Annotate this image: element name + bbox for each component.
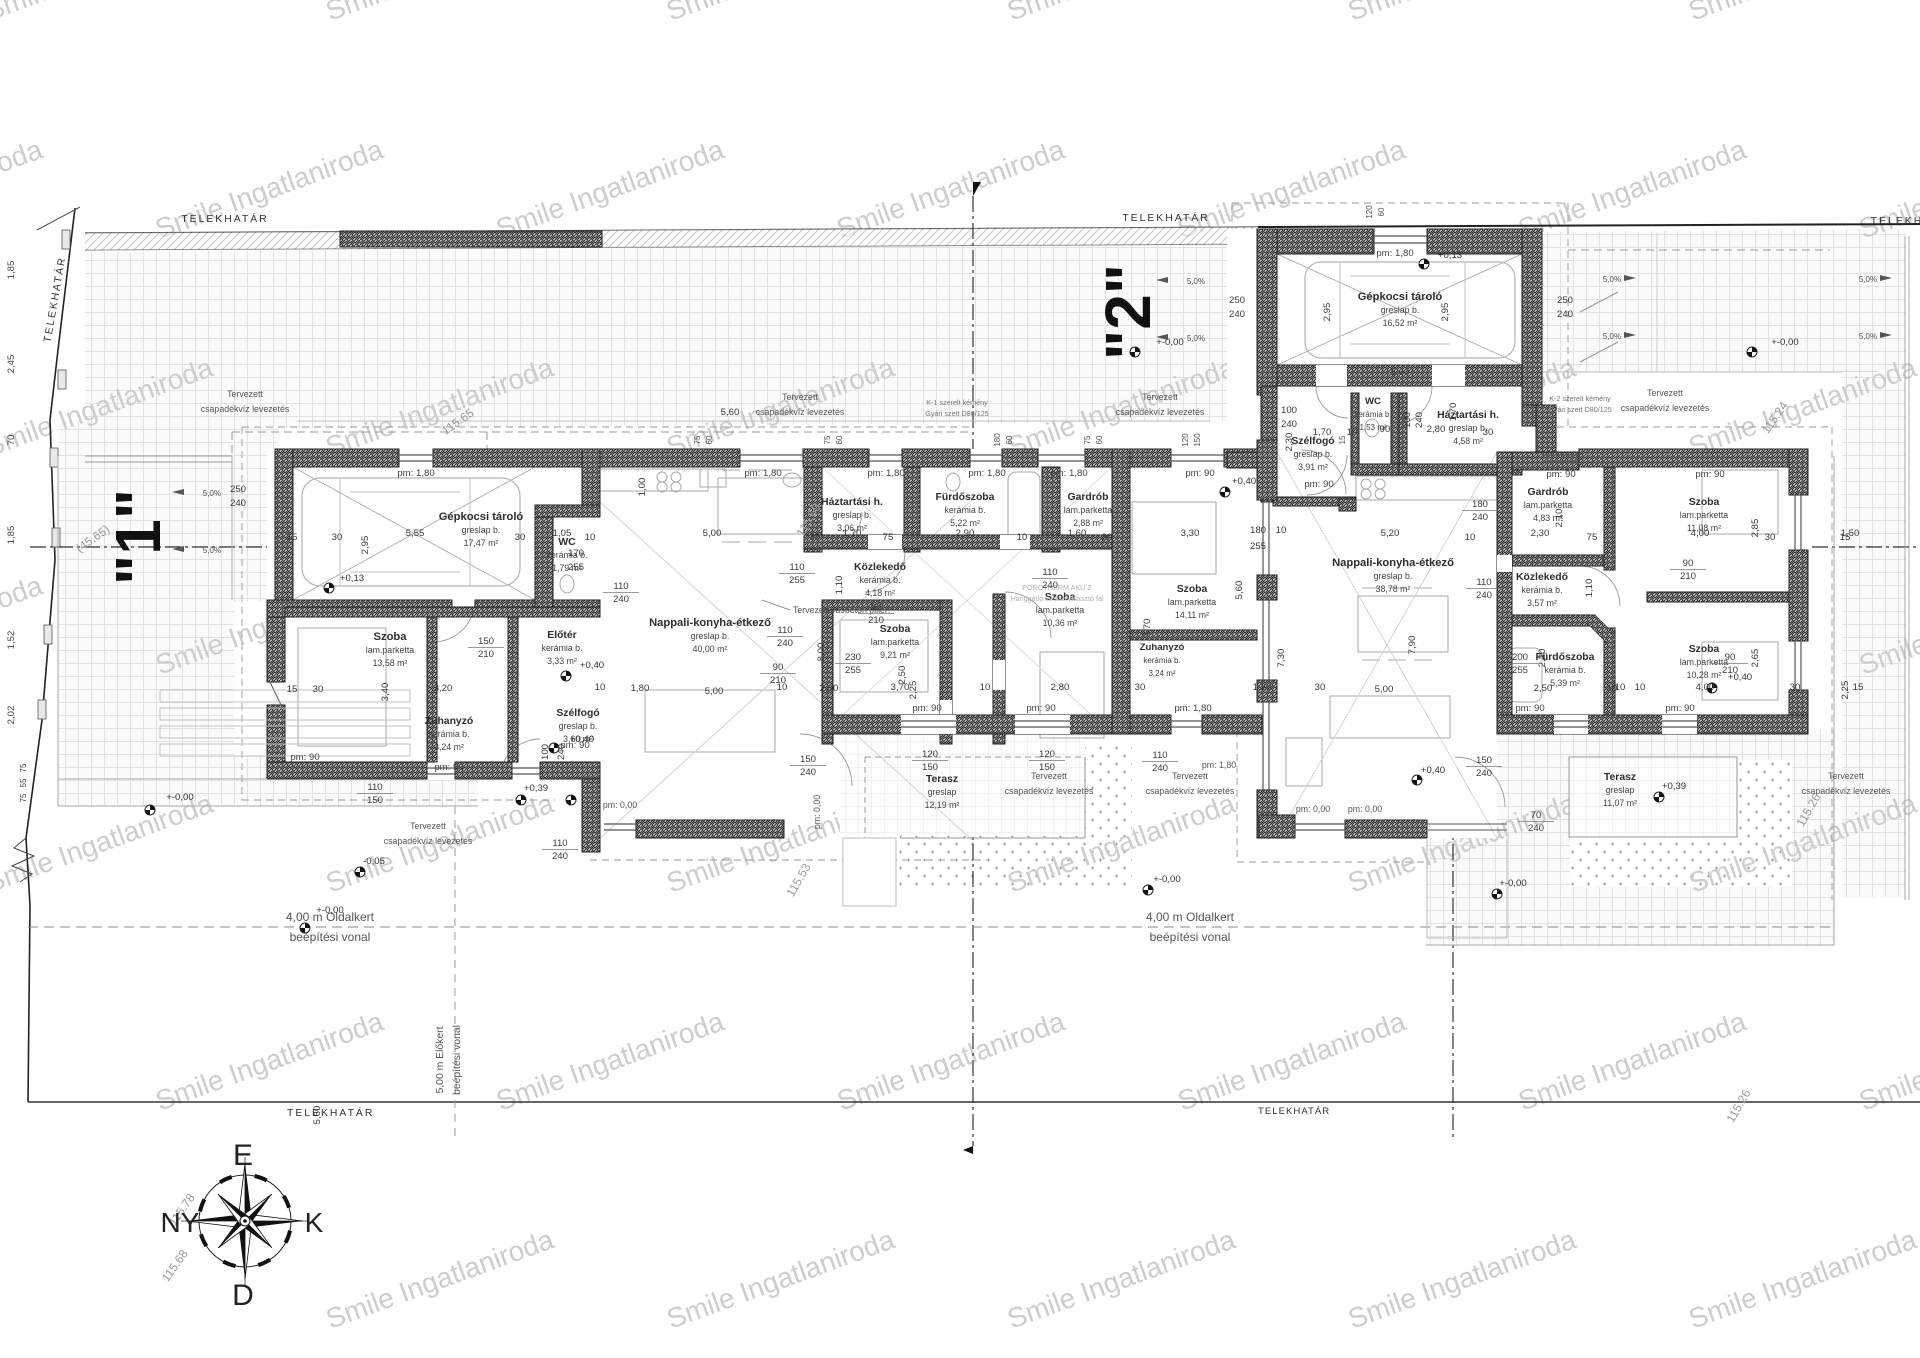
svg-text:pm: 90: pm: 90 xyxy=(290,752,319,763)
svg-text:3,40: 3,40 xyxy=(380,683,391,702)
svg-text:255: 255 xyxy=(789,575,805,586)
svg-text:16,52 m²: 16,52 m² xyxy=(1383,318,1418,328)
svg-text:210: 210 xyxy=(478,649,494,660)
svg-text:8,00: 8,00 xyxy=(816,643,827,662)
svg-text:pm: 90: pm: 90 xyxy=(1665,703,1694,714)
svg-text:pm: 0,00: pm: 0,00 xyxy=(603,800,637,810)
svg-text:Fürdőszoba: Fürdőszoba xyxy=(936,492,995,503)
svg-text:7,90: 7,90 xyxy=(1407,636,1418,655)
svg-text:pm: 90: pm: 90 xyxy=(1695,469,1724,480)
svg-text:255: 255 xyxy=(1250,541,1266,552)
svg-text:Terasz: Terasz xyxy=(1604,772,1636,783)
svg-text:Tervezett: Tervezett xyxy=(410,821,446,831)
svg-text:TELEKHATÁR: TELEKHATÁR xyxy=(1122,211,1209,224)
svg-text:2,02: 2,02 xyxy=(6,706,17,725)
svg-text:250: 250 xyxy=(1557,295,1573,306)
svg-text:30: 30 xyxy=(1483,427,1494,438)
svg-text:2,90: 2,90 xyxy=(956,528,975,539)
svg-text:1,70: 1,70 xyxy=(843,528,862,539)
svg-text:+0,40: +0,40 xyxy=(1421,765,1445,776)
svg-text:1,10: 1,10 xyxy=(834,576,845,595)
svg-text:5,60: 5,60 xyxy=(1391,367,1410,378)
svg-text:Előtér: Előtér xyxy=(547,630,576,641)
svg-text:1,20: 1,20 xyxy=(1253,682,1272,693)
svg-text:Szoba: Szoba xyxy=(1689,644,1720,655)
svg-text:10: 10 xyxy=(1465,532,1476,543)
svg-text:75: 75 xyxy=(19,793,28,802)
svg-text:240: 240 xyxy=(1281,419,1297,430)
svg-text:kerámia b.: kerámia b. xyxy=(1544,665,1585,675)
svg-text:120: 120 xyxy=(1365,205,1374,219)
svg-text:30: 30 xyxy=(1790,682,1801,693)
svg-text:30: 30 xyxy=(1315,682,1326,693)
svg-text:kerámia b.: kerámia b. xyxy=(428,729,469,739)
svg-text:60: 60 xyxy=(1005,435,1014,444)
svg-text:3,57 m²: 3,57 m² xyxy=(1527,598,1557,608)
svg-text:+0,39: +0,39 xyxy=(1662,781,1686,792)
svg-text:110: 110 xyxy=(367,782,382,793)
svg-text:1,10: 1,10 xyxy=(1584,579,1595,598)
svg-text:12,19 m²: 12,19 m² xyxy=(925,800,960,810)
svg-text:Gépkocsi tároló: Gépkocsi tároló xyxy=(439,511,524,523)
svg-text:csapadékvíz levezetés: csapadékvíz levezetés xyxy=(1621,403,1710,413)
svg-text:Tervezett: Tervezett xyxy=(1172,771,1208,781)
svg-text:Háztartási h.: Háztartási h. xyxy=(1437,410,1499,421)
svg-text:2,25: 2,25 xyxy=(908,681,919,700)
svg-text:230: 230 xyxy=(845,652,861,663)
svg-text:2,50: 2,50 xyxy=(897,666,908,685)
svg-text:Gardrób: Gardrób xyxy=(1068,492,1109,503)
svg-text:30: 30 xyxy=(1765,532,1776,543)
svg-text:Szoba: Szoba xyxy=(880,624,911,635)
svg-text:240: 240 xyxy=(1557,309,1573,320)
svg-text:100: 100 xyxy=(1281,405,1297,416)
svg-text:5,00: 5,00 xyxy=(703,528,722,539)
svg-text:200: 200 xyxy=(1512,652,1528,663)
svg-text:15: 15 xyxy=(1853,682,1864,693)
svg-text:240: 240 xyxy=(1229,309,1245,320)
svg-text:greslap b.: greslap b. xyxy=(691,631,730,641)
svg-text:240: 240 xyxy=(230,498,246,509)
svg-text:150: 150 xyxy=(1193,433,1202,447)
svg-text:2,85: 2,85 xyxy=(1750,519,1761,538)
svg-text:kerámia b.: kerámia b. xyxy=(1521,585,1562,595)
svg-text:lam.parketta: lam.parketta xyxy=(1524,500,1573,510)
svg-text:pm: 0,00: pm: 0,00 xyxy=(1296,804,1330,814)
svg-text:2,95: 2,95 xyxy=(1440,303,1451,322)
svg-text:15: 15 xyxy=(287,532,298,543)
svg-text:"1": "1" xyxy=(102,489,174,585)
svg-text:+0,40: +0,40 xyxy=(1232,476,1256,487)
svg-text:1,52: 1,52 xyxy=(6,631,17,650)
svg-text:13,58 m²: 13,58 m² xyxy=(373,658,408,668)
svg-text:210: 210 xyxy=(868,615,884,626)
svg-text:2,95: 2,95 xyxy=(360,536,371,555)
svg-text:greslap b.: greslap b. xyxy=(1449,423,1488,433)
svg-text:10,28 m²: 10,28 m² xyxy=(1687,670,1722,680)
svg-text:5,0%: 5,0% xyxy=(203,489,221,498)
svg-text:D: D xyxy=(232,1279,254,1312)
svg-text:greslap b.: greslap b. xyxy=(559,721,598,731)
svg-text:WC: WC xyxy=(1365,396,1381,407)
svg-text:Zuhanyzó: Zuhanyzó xyxy=(1140,642,1185,653)
svg-text:4,00: 4,00 xyxy=(1696,682,1715,693)
svg-text:3,24 m²: 3,24 m² xyxy=(1148,669,1175,678)
svg-text:110: 110 xyxy=(1152,750,1167,761)
svg-text:greslap: greslap xyxy=(928,787,957,797)
svg-text:75: 75 xyxy=(693,435,702,444)
svg-text:2,95: 2,95 xyxy=(1322,303,1333,322)
svg-text:csapadékvíz levezetés: csapadékvíz levezetés xyxy=(1146,786,1235,796)
svg-text:Tervezett: Tervezett xyxy=(782,392,818,402)
svg-text:kerámia b.: kerámia b. xyxy=(1143,656,1180,665)
svg-text:5,0%: 5,0% xyxy=(1603,275,1621,284)
svg-text:110: 110 xyxy=(552,838,567,849)
svg-text:3,20: 3,20 xyxy=(434,683,453,694)
svg-text:30: 30 xyxy=(332,532,343,543)
svg-text:kerámia b.: kerámia b. xyxy=(859,575,900,585)
svg-text:Nappali-konyha-étkező: Nappali-konyha-étkező xyxy=(1332,557,1454,569)
svg-text:+-0,00: +-0,00 xyxy=(1771,337,1798,348)
svg-text:Nappali-konyha-étkező: Nappali-konyha-étkező xyxy=(649,617,771,629)
svg-text:240: 240 xyxy=(552,851,568,862)
svg-text:240: 240 xyxy=(1414,412,1425,428)
svg-text:15: 15 xyxy=(287,684,298,695)
svg-text:38,78 m²: 38,78 m² xyxy=(1376,584,1411,594)
svg-text:pm: 1,80: pm: 1,80 xyxy=(1202,760,1236,770)
svg-text:2,50: 2,50 xyxy=(1534,683,1553,694)
svg-text:110: 110 xyxy=(777,625,792,636)
svg-text:pm: 1,80: pm: 1,80 xyxy=(744,468,781,479)
svg-text:greslap: greslap xyxy=(1606,785,1635,795)
svg-text:pm: 0,00: pm: 0,00 xyxy=(1348,804,1382,814)
svg-text:150: 150 xyxy=(922,762,938,773)
svg-text:NY: NY xyxy=(161,1207,200,1238)
svg-text:240: 240 xyxy=(800,767,816,778)
svg-text:Tervezett: Tervezett xyxy=(1647,388,1683,398)
svg-text:2,25: 2,25 xyxy=(1840,681,1851,700)
svg-text:75: 75 xyxy=(883,532,894,543)
svg-text:10: 10 xyxy=(1615,682,1626,693)
svg-text:180: 180 xyxy=(993,433,1002,447)
svg-text:2,45: 2,45 xyxy=(6,355,17,374)
svg-text:5,55: 5,55 xyxy=(406,528,425,539)
svg-text:lam.parketta: lam.parketta xyxy=(1168,597,1217,607)
svg-text:4,18 m²: 4,18 m² xyxy=(865,588,895,598)
svg-text:kerámia b.: kerámia b. xyxy=(541,643,582,653)
svg-text:110: 110 xyxy=(1476,577,1491,588)
svg-text:10: 10 xyxy=(1276,525,1287,536)
svg-text:255: 255 xyxy=(568,562,584,573)
svg-text:2,65: 2,65 xyxy=(1750,649,1761,668)
svg-text:2,00: 2,00 xyxy=(820,683,839,694)
svg-text:Tervezett: Tervezett xyxy=(1142,392,1178,402)
svg-text:Szélfogó: Szélfogó xyxy=(556,708,599,719)
svg-text:170: 170 xyxy=(568,548,584,559)
svg-text:11,07 m²: 11,07 m² xyxy=(1603,798,1637,808)
svg-text:lam.parketta: lam.parketta xyxy=(1680,510,1729,520)
svg-text:Szoba: Szoba xyxy=(374,631,408,643)
svg-text:Gyári szett D80/125: Gyári szett D80/125 xyxy=(1548,405,1612,414)
svg-text:3,91 m²: 3,91 m² xyxy=(1298,462,1328,472)
svg-text:5,0%: 5,0% xyxy=(203,546,221,555)
svg-text:K-1 szerelt kémény: K-1 szerelt kémény xyxy=(926,398,988,407)
svg-text:TELEKH: TELEKH xyxy=(1871,216,1920,227)
svg-text:TELEKHATÁR: TELEKHATÁR xyxy=(1258,1106,1330,1117)
svg-text:pm: 90: pm: 90 xyxy=(1515,703,1544,714)
svg-text:5,39 m²: 5,39 m² xyxy=(1550,678,1580,688)
svg-text:240: 240 xyxy=(1476,590,1492,601)
svg-text:pm: 90: pm: 90 xyxy=(1546,469,1575,480)
svg-text:10: 10 xyxy=(1017,532,1028,543)
svg-text:"2": "2" xyxy=(1092,264,1164,360)
svg-text:pm: 90: pm: 90 xyxy=(912,703,941,714)
svg-text:greslap b.: greslap b. xyxy=(462,525,501,535)
svg-text:10,36 m²: 10,36 m² xyxy=(1043,618,1078,628)
svg-text:2,88 m²: 2,88 m² xyxy=(1073,518,1103,528)
svg-text:4,58 m²: 4,58 m² xyxy=(1453,436,1483,446)
svg-text:75: 75 xyxy=(19,763,28,772)
svg-text:9,21 m²: 9,21 m² xyxy=(880,650,910,660)
svg-text:75: 75 xyxy=(1083,435,1092,444)
svg-text:240: 240 xyxy=(556,744,567,760)
svg-text:2,30: 2,30 xyxy=(1284,433,1295,452)
svg-text:csapadékvíz levezetés: csapadékvíz levezetés xyxy=(756,407,845,417)
svg-text:60: 60 xyxy=(1377,207,1386,216)
svg-text:pm: 90: pm: 90 xyxy=(1026,703,1055,714)
svg-text:Tervezett: Tervezett xyxy=(1828,771,1864,781)
svg-text:lam.parketta: lam.parketta xyxy=(366,645,415,655)
svg-text:210: 210 xyxy=(770,675,786,686)
svg-text:+0,40: +0,40 xyxy=(580,660,604,671)
svg-text:-0,05: -0,05 xyxy=(363,856,385,867)
svg-text:150: 150 xyxy=(800,754,816,765)
svg-text:3,33 m²: 3,33 m² xyxy=(547,656,577,666)
svg-text:2,10: 2,10 xyxy=(1554,509,1565,528)
svg-text:120: 120 xyxy=(1039,749,1055,760)
svg-text:180: 180 xyxy=(1250,525,1266,536)
svg-text:+-0,00: +-0,00 xyxy=(1499,878,1526,889)
svg-text:K: K xyxy=(305,1207,324,1238)
svg-text:250: 250 xyxy=(1229,295,1245,306)
svg-text:greslap b.: greslap b. xyxy=(833,510,872,520)
svg-text:5,00 m Előkert: 5,00 m Előkert xyxy=(435,1026,446,1093)
svg-text:2,20: 2,20 xyxy=(1537,649,1548,668)
svg-text:TELEKHATÁR: TELEKHATÁR xyxy=(287,1106,374,1119)
svg-text:60: 60 xyxy=(705,435,714,444)
svg-text:90: 90 xyxy=(1725,652,1736,663)
svg-text:pm: 90: pm: 90 xyxy=(434,762,463,773)
svg-text:greslap b.: greslap b. xyxy=(1381,305,1420,315)
svg-text:3,70: 3,70 xyxy=(1142,619,1153,638)
svg-text:1,05: 1,05 xyxy=(553,528,572,539)
svg-text:240: 240 xyxy=(1528,823,1544,834)
svg-text:255: 255 xyxy=(1512,665,1528,676)
svg-text:120: 120 xyxy=(922,749,938,760)
svg-text:10: 10 xyxy=(1347,427,1358,438)
svg-text:Zuhanyzó: Zuhanyzó xyxy=(425,716,474,727)
svg-text:K-2 szerelt kémény: K-2 szerelt kémény xyxy=(1549,394,1611,403)
svg-text:Gardrób: Gardrób xyxy=(1528,487,1569,498)
svg-text:90: 90 xyxy=(871,602,882,613)
svg-text:10: 10 xyxy=(980,682,991,693)
svg-text:1,80: 1,80 xyxy=(631,683,650,694)
svg-text:2,30: 2,30 xyxy=(1531,528,1550,539)
svg-text:pm: 1,80: pm: 1,80 xyxy=(1174,703,1211,714)
svg-text:Gyári szett D80/125: Gyári szett D80/125 xyxy=(925,409,989,418)
svg-text:pm: 1,80: pm: 1,80 xyxy=(397,468,434,479)
svg-text:pm: 0,00: pm: 0,00 xyxy=(812,795,822,829)
svg-text:1,70: 1,70 xyxy=(1448,403,1459,422)
svg-text:10: 10 xyxy=(1635,682,1646,693)
svg-text:5,0%: 5,0% xyxy=(1187,277,1205,286)
svg-text:240: 240 xyxy=(1042,580,1058,591)
svg-text:Szoba: Szoba xyxy=(1689,497,1720,508)
svg-text:210: 210 xyxy=(1680,571,1696,582)
svg-text:110: 110 xyxy=(789,562,804,573)
svg-text:Közlekedő: Közlekedő xyxy=(854,562,906,573)
svg-text:30: 30 xyxy=(313,684,324,695)
svg-text:Szoba: Szoba xyxy=(1177,584,1208,595)
svg-text:240: 240 xyxy=(1476,768,1492,779)
svg-text:kerámia b.: kerámia b. xyxy=(1354,410,1391,419)
svg-text:lam.parketta: lam.parketta xyxy=(871,637,920,647)
svg-text:10: 10 xyxy=(595,682,606,693)
svg-text:5,0%: 5,0% xyxy=(1859,275,1877,284)
svg-text:csapadékvíz levezetés: csapadékvíz levezetés xyxy=(1116,407,1205,417)
svg-text:beépítési vonal: beépítési vonal xyxy=(452,1025,463,1095)
svg-text:250: 250 xyxy=(230,484,246,495)
svg-text:pm: 1,80: pm: 1,80 xyxy=(1050,468,1087,479)
svg-text:30: 30 xyxy=(1135,682,1146,693)
svg-text:2,80: 2,80 xyxy=(1427,424,1446,435)
svg-text:+-0,00: +-0,00 xyxy=(166,792,193,803)
svg-text:10: 10 xyxy=(585,532,596,543)
svg-text:lam.parketta: lam.parketta xyxy=(1064,505,1113,515)
svg-text:150: 150 xyxy=(478,636,494,647)
svg-text:14,11 m²: 14,11 m² xyxy=(1175,610,1209,620)
svg-text:150: 150 xyxy=(367,795,383,806)
svg-text:1,70: 1,70 xyxy=(1313,427,1332,438)
svg-text:240: 240 xyxy=(613,594,629,605)
svg-text:90: 90 xyxy=(1683,558,1694,569)
svg-text:240: 240 xyxy=(1472,512,1488,523)
svg-text:255: 255 xyxy=(845,665,861,676)
svg-text:csapadékvíz levezetés: csapadékvíz levezetés xyxy=(201,404,290,414)
svg-text:30: 30 xyxy=(1102,532,1113,543)
svg-text:30: 30 xyxy=(810,532,821,543)
svg-text:30: 30 xyxy=(515,532,526,543)
svg-text:lam.parketta: lam.parketta xyxy=(1036,605,1085,615)
svg-text:pm: 90: pm: 90 xyxy=(1185,468,1214,479)
svg-text:greslap b.: greslap b. xyxy=(1374,571,1413,581)
svg-text:7,30: 7,30 xyxy=(1276,649,1287,668)
svg-text:3,24 m²: 3,24 m² xyxy=(434,742,464,752)
svg-text:70: 70 xyxy=(1531,810,1542,821)
svg-text:3,30: 3,30 xyxy=(1181,528,1200,539)
svg-text:100: 100 xyxy=(540,744,551,760)
svg-text:150: 150 xyxy=(1476,755,1492,766)
svg-text:70: 70 xyxy=(6,435,17,446)
svg-text:1,00: 1,00 xyxy=(637,478,648,497)
svg-text:2,80: 2,80 xyxy=(1051,682,1070,693)
svg-text:120: 120 xyxy=(1181,433,1190,447)
svg-text:90: 90 xyxy=(773,662,784,673)
svg-text:kerámia b.: kerámia b. xyxy=(944,505,985,515)
svg-text:5,0%: 5,0% xyxy=(1603,332,1621,341)
svg-text:Háztartási h.: Háztartási h. xyxy=(821,497,883,508)
svg-text:pm: 90: pm: 90 xyxy=(1304,479,1333,490)
svg-text:100: 100 xyxy=(1402,412,1413,428)
svg-text:5,22 m²: 5,22 m² xyxy=(950,518,980,528)
svg-text:+0,40: +0,40 xyxy=(570,734,594,745)
svg-text:1,85: 1,85 xyxy=(6,526,17,545)
svg-text:4,00 m Oldalkert: 4,00 m Oldalkert xyxy=(1146,910,1235,924)
svg-text:60: 60 xyxy=(835,435,844,444)
svg-text:5,00: 5,00 xyxy=(1375,684,1394,695)
svg-text:Hanggátló lakáselválasztó fal: Hanggátló lakáselválasztó fal xyxy=(1010,594,1103,603)
svg-text:5,60: 5,60 xyxy=(1234,581,1245,600)
svg-text:90: 90 xyxy=(1380,424,1391,435)
svg-text:17,47 m²: 17,47 m² xyxy=(464,538,499,548)
svg-text:240: 240 xyxy=(777,638,793,649)
svg-text:15: 15 xyxy=(1338,435,1347,444)
svg-text:180: 180 xyxy=(1472,499,1488,510)
svg-text:+0,13: +0,13 xyxy=(1438,250,1462,261)
svg-text:+-0,00: +-0,00 xyxy=(316,905,343,916)
svg-text:75: 75 xyxy=(823,435,832,444)
svg-text:5,60: 5,60 xyxy=(721,407,740,418)
svg-text:Gépkocsi tároló: Gépkocsi tároló xyxy=(1358,291,1443,303)
svg-text:55: 55 xyxy=(19,778,28,787)
svg-text:240: 240 xyxy=(1152,763,1168,774)
svg-text:pm: 1,80: pm: 1,80 xyxy=(867,468,904,479)
svg-text:1,85: 1,85 xyxy=(6,261,17,280)
svg-text:210: 210 xyxy=(1722,665,1738,676)
svg-text:40,00 m²: 40,00 m² xyxy=(693,644,728,654)
svg-text:E: E xyxy=(233,1139,253,1172)
svg-text:5,20: 5,20 xyxy=(1381,528,1400,539)
svg-text:60: 60 xyxy=(1095,435,1104,444)
svg-text:5,00: 5,00 xyxy=(705,686,724,697)
svg-text:TELEKHATÁR: TELEKHATÁR xyxy=(181,212,268,225)
svg-text:1,60: 1,60 xyxy=(1068,528,1087,539)
svg-text:15: 15 xyxy=(1840,532,1851,543)
svg-text:Közlekedő: Közlekedő xyxy=(1516,572,1568,583)
svg-text:4,00: 4,00 xyxy=(1691,528,1710,539)
svg-text:5,0%: 5,0% xyxy=(1859,332,1877,341)
svg-text:Terasz: Terasz xyxy=(926,774,958,785)
svg-text:csapadékvíz levezetés: csapadékvíz levezetés xyxy=(384,836,473,846)
svg-text:+0,13: +0,13 xyxy=(340,573,364,584)
svg-text:beépítési vonal: beépítési vonal xyxy=(1150,930,1231,944)
svg-text:pm: 1,80: pm: 1,80 xyxy=(968,468,1005,479)
svg-text:5,60: 5,60 xyxy=(312,1106,323,1125)
svg-text:110: 110 xyxy=(1042,567,1057,578)
svg-text:+-0,00: +-0,00 xyxy=(1153,874,1180,885)
svg-text:150: 150 xyxy=(1039,762,1055,773)
svg-text:75: 75 xyxy=(1587,532,1598,543)
svg-text:greslap b.: greslap b. xyxy=(1294,449,1333,459)
svg-text:110: 110 xyxy=(613,581,628,592)
svg-text:csapadékvíz levezetés: csapadékvíz levezetés xyxy=(1005,786,1094,796)
svg-text:pm: 1,80: pm: 1,80 xyxy=(1376,248,1413,259)
svg-text:Tervezett: Tervezett xyxy=(227,389,263,399)
svg-text:+0,39: +0,39 xyxy=(524,783,548,794)
svg-text:+-0,00: +-0,00 xyxy=(1156,337,1183,348)
svg-text:5,0%: 5,0% xyxy=(1187,334,1205,343)
